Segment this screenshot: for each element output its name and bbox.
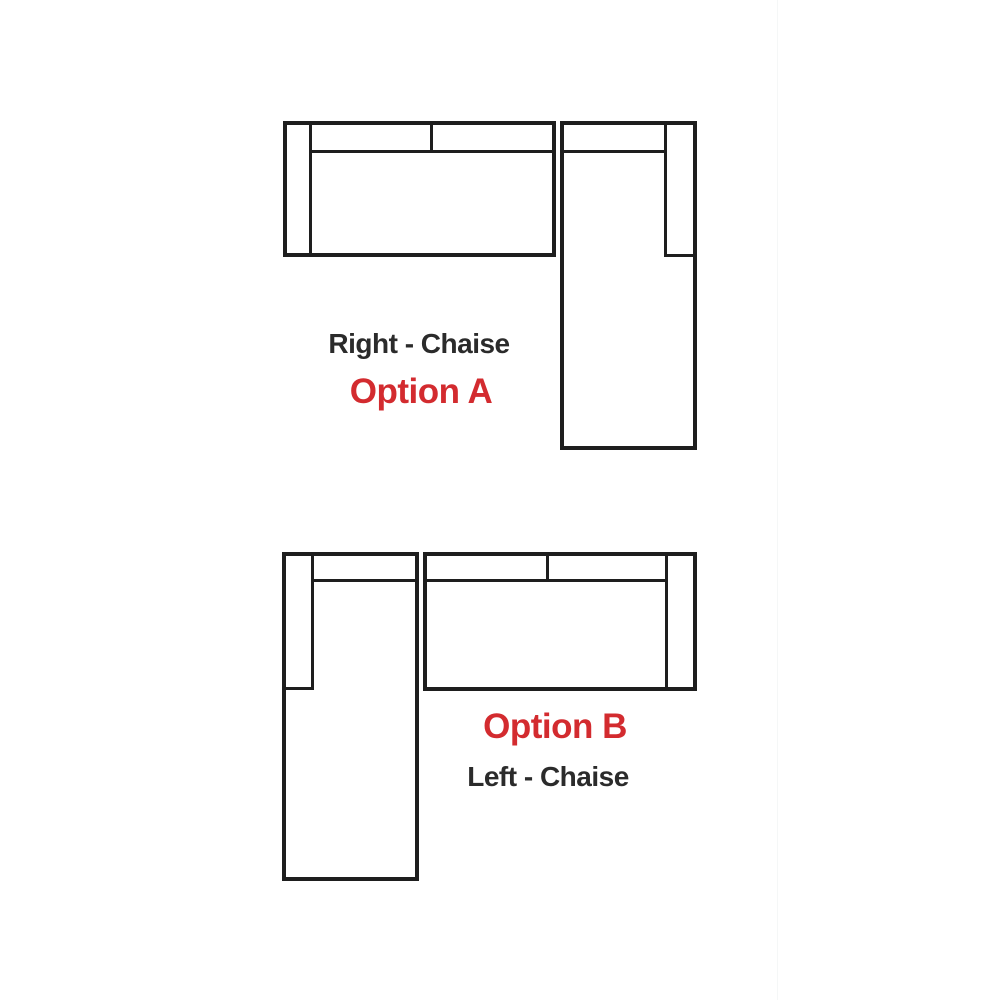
option-a-right-armrest-bottom-line (664, 254, 697, 257)
option-b-left-armrest-bottom-line (282, 687, 314, 690)
option-b-chaise-back-cushion-line (311, 579, 419, 582)
option-a-right-armrest-line (664, 121, 667, 257)
option-b-sofa-outline (423, 552, 697, 691)
faint-edge-artifact (777, 0, 778, 1000)
option-b-chaise-outline (282, 552, 419, 881)
option-a-type-label: Right - Chaise (328, 328, 509, 360)
option-b-back-cushion-divider (546, 552, 549, 582)
option-b-right-armrest-line (665, 552, 668, 691)
sectional-configuration-diagram: Right - Chaise Option A Option B Left - … (0, 0, 1000, 1000)
option-a-back-cushion-divider (430, 121, 433, 153)
option-b-left-armrest-line (311, 552, 314, 690)
option-b-option-label: Option B (483, 707, 627, 747)
option-a-left-armrest-line (309, 121, 312, 257)
option-b-back-cushion-line (423, 579, 667, 582)
option-a-chaise-back-cushion-line (560, 150, 666, 153)
option-a-chaise-outline (560, 121, 697, 450)
option-a-sofa-outline (283, 121, 556, 257)
option-a-option-label: Option A (350, 372, 492, 412)
option-b-type-label: Left - Chaise (467, 761, 629, 793)
